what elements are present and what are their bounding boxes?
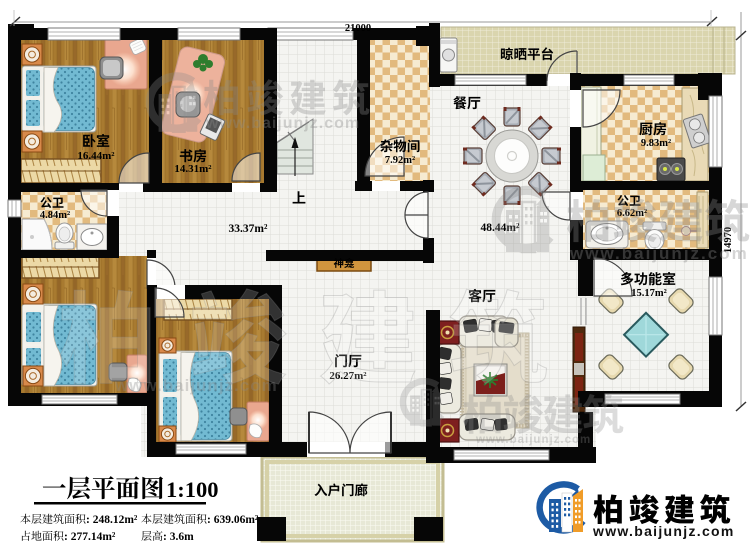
svg-text:: 639.06m²: : 639.06m²	[207, 514, 259, 526]
svg-text:: 277.14m²: : 277.14m²	[64, 531, 116, 543]
svg-text:4.84m²: 4.84m²	[40, 210, 70, 221]
svg-text:www.baijunjz.com: www.baijunjz.com	[592, 523, 735, 539]
svg-text:15.17m²: 15.17m²	[631, 288, 667, 299]
svg-text:21000: 21000	[345, 23, 371, 34]
svg-text:16.44m²: 16.44m²	[77, 150, 115, 162]
svg-text:: 248.12m²: : 248.12m²	[86, 514, 138, 526]
svg-text:www.baijunjz.com: www.baijunjz.com	[475, 434, 591, 446]
svg-text:www.baijunjz.com: www.baijunjz.com	[205, 115, 360, 132]
svg-text:14.31m²: 14.31m²	[174, 163, 212, 175]
svg-text:1:100: 1:100	[166, 477, 219, 502]
svg-text:33.37m²: 33.37m²	[229, 223, 268, 235]
svg-text:9.83m²: 9.83m²	[641, 138, 671, 149]
svg-text:www.baijunjz.com: www.baijunjz.com	[114, 376, 278, 395]
svg-text:: 3.6m: : 3.6m	[163, 531, 194, 543]
svg-text:7.92m²: 7.92m²	[385, 155, 415, 166]
svg-text:www.baijunjz.com: www.baijunjz.com	[569, 244, 749, 263]
